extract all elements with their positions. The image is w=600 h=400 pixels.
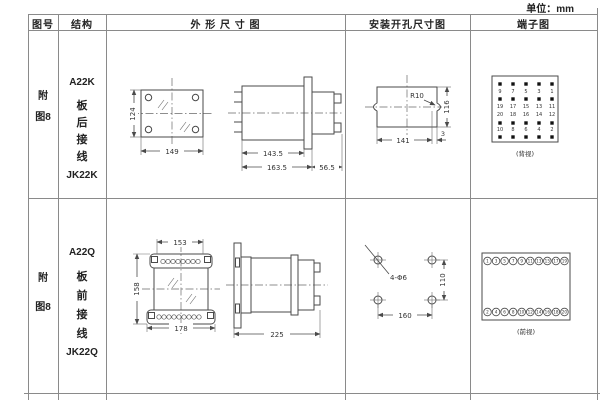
svg-text:19: 19 xyxy=(562,259,568,264)
front-view xyxy=(142,244,220,334)
structure-code-row2: JK22Q xyxy=(58,347,106,358)
svg-text:12: 12 xyxy=(528,310,534,315)
svg-text:17: 17 xyxy=(553,259,559,264)
table-border-top xyxy=(28,14,598,15)
svg-text:13: 13 xyxy=(536,259,542,264)
svg-text:14: 14 xyxy=(536,112,542,118)
svg-text:16: 16 xyxy=(545,310,551,315)
dim-bottom-width: 178 xyxy=(174,325,187,333)
svg-text:1: 1 xyxy=(486,259,489,264)
header-terminal: 端子图 xyxy=(470,16,597,31)
header-outline: 外 形 尺 寸 图 xyxy=(106,16,345,31)
dim-side-length: 225 xyxy=(270,331,283,339)
svg-text:9: 9 xyxy=(498,89,501,95)
header-figure: 图号 xyxy=(28,16,58,31)
svg-text:13: 13 xyxy=(536,104,542,110)
front-view xyxy=(131,78,213,148)
unit-label: 单位：mm xyxy=(490,0,574,15)
terminal-grid-rear: 9753119171513112018161412108642 xyxy=(497,82,555,138)
svg-text:18: 18 xyxy=(510,112,516,118)
side-view xyxy=(228,77,344,149)
svg-text:10: 10 xyxy=(519,310,525,315)
structure-code-row1: JK22K xyxy=(58,170,106,181)
svg-text:5: 5 xyxy=(503,259,506,264)
svg-text:15: 15 xyxy=(523,104,529,110)
svg-text:8: 8 xyxy=(512,310,515,315)
dim-body-length: 143.5 xyxy=(263,150,283,158)
svg-text:4: 4 xyxy=(495,310,498,315)
svg-text:5: 5 xyxy=(524,89,527,95)
svg-text:6: 6 xyxy=(524,127,527,133)
header-structure: 结构 xyxy=(58,16,106,31)
svg-text:4: 4 xyxy=(537,127,540,133)
side-view xyxy=(226,243,328,328)
svg-text:20: 20 xyxy=(562,310,568,315)
svg-text:2: 2 xyxy=(550,127,553,133)
terminal-diagram-front: 1357911131517192468101214161820 (前视) xyxy=(470,198,597,393)
svg-text:17: 17 xyxy=(510,104,516,110)
svg-text:3: 3 xyxy=(495,259,498,264)
svg-text:15: 15 xyxy=(545,259,551,264)
svg-text:8: 8 xyxy=(511,127,514,133)
svg-text:20: 20 xyxy=(497,112,503,118)
svg-text:7: 7 xyxy=(512,259,515,264)
dim-rear-length: 56.5 xyxy=(319,164,335,172)
svg-text:1: 1 xyxy=(550,89,553,95)
structure-model-row1: A22K xyxy=(58,77,106,88)
terminal-view-label-row2: (前视) xyxy=(517,327,535,336)
structure-wiring-row2: 板前接线 xyxy=(58,268,106,344)
svg-text:10: 10 xyxy=(497,127,503,133)
label-hole-spec: 4-Φ6 xyxy=(390,274,407,282)
svg-text:6: 6 xyxy=(503,310,506,315)
hatch-marks xyxy=(168,278,196,304)
dim-hole-spacing-y: 110 xyxy=(439,273,447,286)
dim-front-height: 158 xyxy=(133,282,141,295)
structure-wiring-row1: 板后接线 xyxy=(58,98,106,166)
svg-text:9: 9 xyxy=(520,259,523,264)
dim-top-width: 153 xyxy=(173,239,186,247)
svg-text:2: 2 xyxy=(486,310,489,315)
dim-cutout-width: 141 xyxy=(396,137,409,145)
terminal-dots-bottom xyxy=(157,315,201,319)
dim-front-width: 149 xyxy=(165,148,178,156)
terminal-diagram-rear: 9753119171513112018161412108642 (背视) xyxy=(470,30,597,198)
dim-total-length: 163.5 xyxy=(267,164,287,172)
terminal-dots-top xyxy=(161,259,200,263)
svg-text:19: 19 xyxy=(497,104,503,110)
dim-hole-spacing-x: 160 xyxy=(398,312,411,320)
svg-text:7: 7 xyxy=(511,89,514,95)
terminal-view-label-row1: (背视) xyxy=(516,149,534,158)
mounting-drawing-a22q: 4-Φ6 110 160 xyxy=(345,198,470,393)
mounting-holes: 4-Φ6 xyxy=(365,245,440,308)
dim-edge-offset: 3 xyxy=(441,130,445,138)
figure-no-row1: 附图8 xyxy=(28,86,58,128)
terminal-strip-front: 1357911131517192468101214161820 xyxy=(484,257,569,316)
dimensions: 110 160 xyxy=(378,260,449,320)
table-border-row2 xyxy=(24,393,600,394)
table-border-right xyxy=(597,8,598,400)
dim-front-height: 124 xyxy=(129,107,137,121)
svg-text:16: 16 xyxy=(523,112,529,118)
figure-no-row2: 附图8 xyxy=(28,264,58,322)
svg-text:12: 12 xyxy=(549,112,555,118)
svg-text:11: 11 xyxy=(549,104,555,110)
header-mounting: 安装开孔尺寸图 xyxy=(345,16,470,31)
structure-model-row2: A22Q xyxy=(58,247,106,258)
datasheet-page: 单位：mm 图号 结构 外 形 尺 寸 图 安装开孔尺寸图 端子图 附图8 A2… xyxy=(0,0,600,400)
table-border-left xyxy=(28,14,29,400)
label-radius: R10 xyxy=(410,92,424,100)
outline-drawing-a22k: 124 149 143.5 163.5 56.5 xyxy=(106,30,345,198)
svg-text:11: 11 xyxy=(528,259,534,264)
svg-text:14: 14 xyxy=(536,310,542,315)
mounting-drawing-a22k: R10 141 3 116 xyxy=(345,30,470,198)
svg-text:18: 18 xyxy=(553,310,559,315)
svg-text:3: 3 xyxy=(537,89,540,95)
hatch-marks xyxy=(158,100,190,132)
dim-cutout-height: 116 xyxy=(443,100,451,114)
outline-drawing-a22q: 153 158 178 225 xyxy=(106,198,345,393)
